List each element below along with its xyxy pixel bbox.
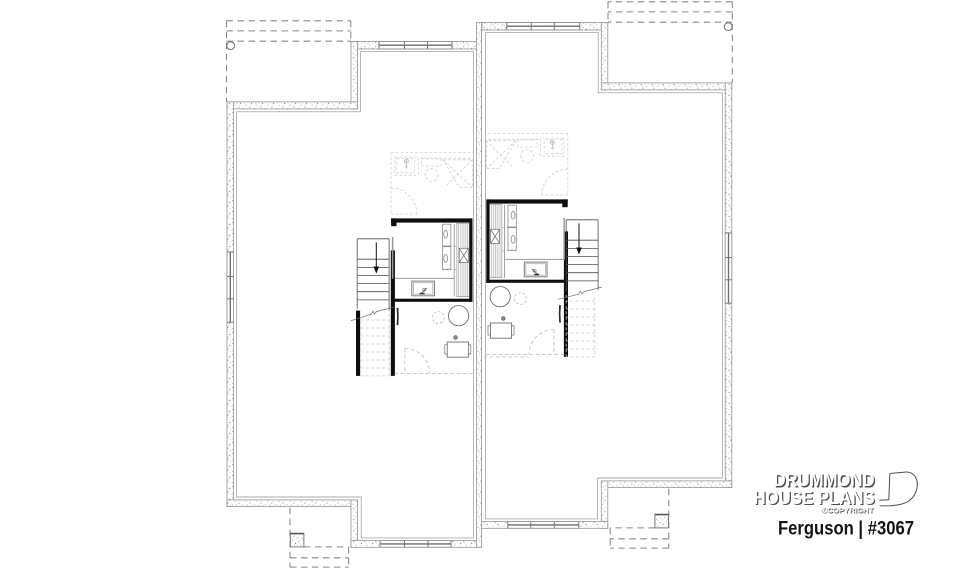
- svg-text:Ferguson | #3067: Ferguson | #3067: [778, 517, 914, 539]
- svg-text:©COPYRIGHT: ©COPYRIGHT: [822, 506, 874, 515]
